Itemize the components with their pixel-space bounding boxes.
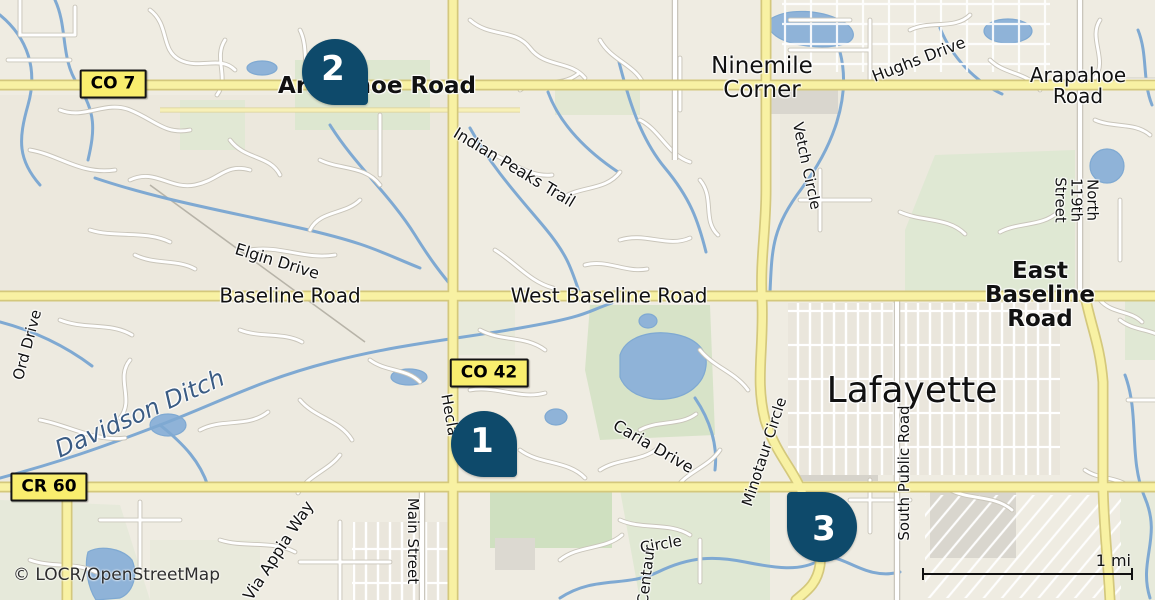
map-canvas (0, 0, 1155, 600)
route-badge-co42: CO 42 (450, 359, 529, 388)
map-pin-1-number: 1 (470, 421, 494, 461)
route-badge-co7: CO 7 (80, 70, 147, 99)
map-pin-2-number: 2 (321, 49, 345, 89)
map-viewport: Arapahoe Road Ninemile Corner Hughs Driv… (0, 0, 1155, 600)
map-pin-1[interactable]: 1 (451, 411, 517, 477)
scale-bar: 1 mi (922, 568, 1133, 580)
map-pin-3[interactable]: 3 (787, 492, 857, 562)
scale-bar-line (924, 573, 1131, 575)
map-pin-3-number: 3 (812, 509, 836, 549)
route-badge-cr60: CR 60 (10, 473, 87, 502)
scale-bar-label: 1 mi (1096, 551, 1131, 570)
map-pin-2[interactable]: 2 (302, 39, 368, 105)
map-attribution: © LOCR/OpenStreetMap (13, 565, 220, 585)
